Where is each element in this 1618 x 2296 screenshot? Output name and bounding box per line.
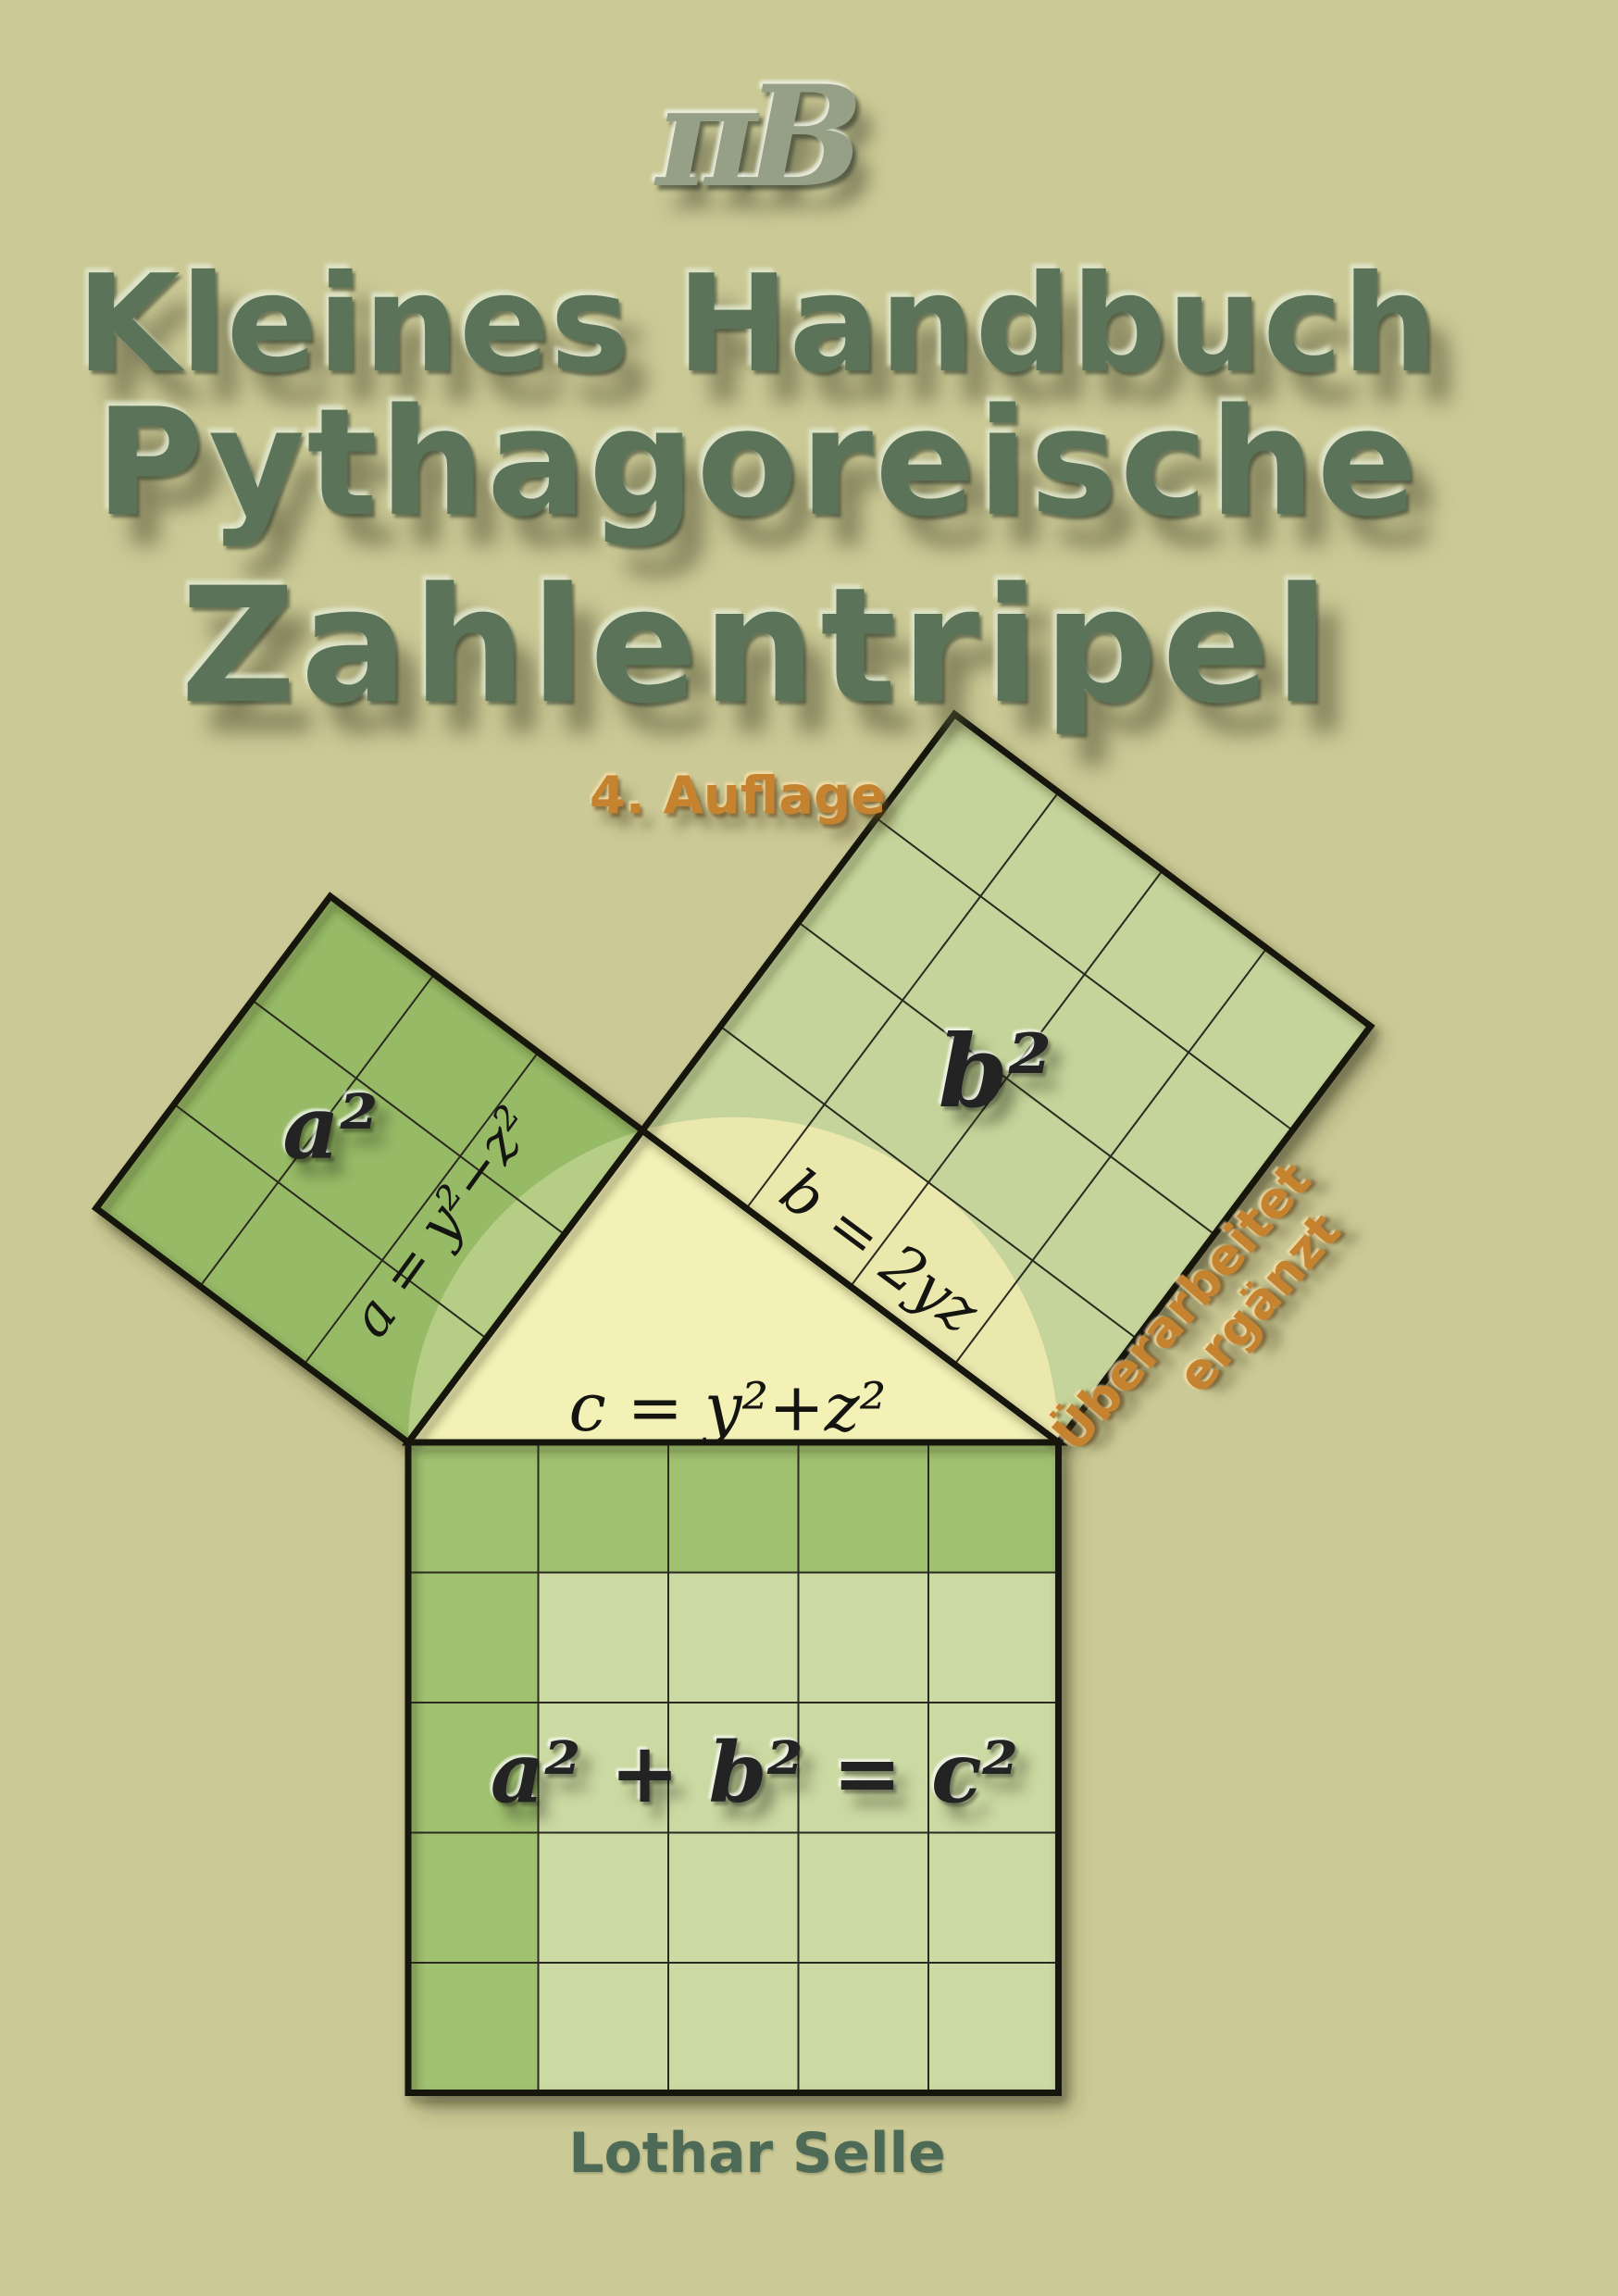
title-line-1: Kleines Handbuch: [77, 257, 1438, 392]
author-name: Lothar Selle: [568, 2121, 946, 2186]
side-c-formula: c = y²+z²: [568, 1374, 886, 1441]
publisher-logo-pi-b: πB: [656, 68, 853, 206]
book-cover: πB Kleines Handbuch Pythagoreische Zahle…: [0, 0, 1618, 2296]
label-b-squared: b²: [939, 1022, 1052, 1122]
title-line-2: Pythagoreische: [95, 389, 1419, 537]
label-pythagoras-equation: a² + b² = c²: [491, 1731, 1018, 1815]
title-line-3: Zahlentripel: [180, 567, 1334, 726]
edition-label: 4. Auflage: [590, 768, 886, 827]
label-a-squared: a²: [282, 1084, 378, 1172]
